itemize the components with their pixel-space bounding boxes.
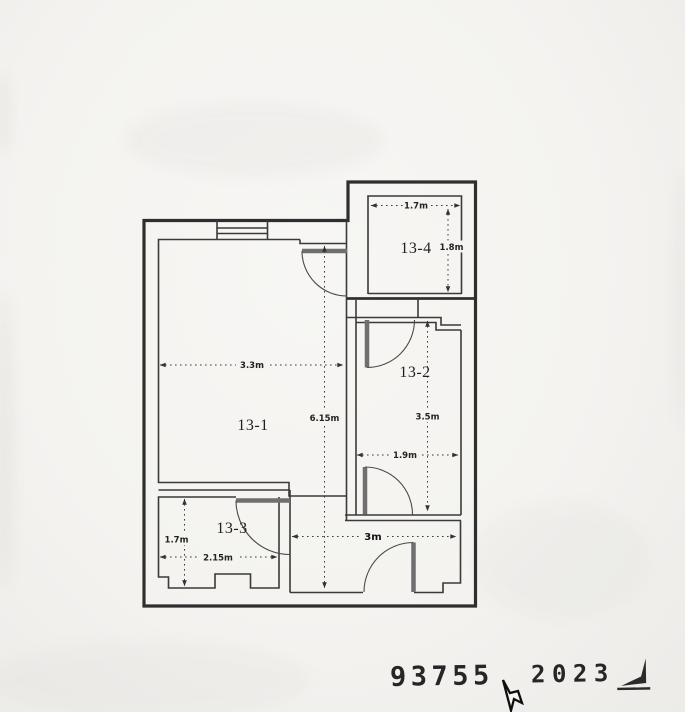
- door-swing-arc: [364, 543, 414, 593]
- room-label-13-2: 13-2: [399, 364, 430, 381]
- stamp-number-left: 93755: [390, 660, 494, 693]
- dim-13-2-height-label: 3.5m: [416, 413, 440, 423]
- scanned-floor-plan-page: 3.3m 6.15m 1.7m 1.8m 3.5m 1.9m 3m 1.7m 2: [0, 0, 685, 712]
- dim-13-3-height-label: 1.7m: [165, 536, 189, 546]
- mouse-pointer-icon: [503, 680, 522, 711]
- dim-13-1-width-label: 3.3m: [240, 361, 264, 371]
- door-13-2-lower: [365, 467, 413, 515]
- dim-13-3-width-label: 2.15m: [203, 554, 233, 564]
- stamp-numbers: 93755 2023: [390, 657, 651, 693]
- dimension-lines: 3.3m 6.15m 1.7m 1.8m 3.5m 1.9m 3m 1.7m 2: [160, 199, 465, 588]
- dim-13-1-height-label: 6.15m: [310, 414, 340, 424]
- dim-13-4-width-label: 1.7m: [404, 202, 428, 212]
- window-symbol: [217, 221, 268, 240]
- door-13-2-upper: [367, 320, 415, 368]
- door-13-1-top: [302, 251, 347, 296]
- door-swing-arc: [302, 251, 347, 296]
- dim-13-2-width-label: 1.9m: [393, 451, 417, 461]
- dim-corridor-width-label: 3m: [364, 532, 381, 543]
- stamp-corner-mark-icon: [617, 658, 651, 689]
- door-swing-arc: [365, 467, 413, 515]
- stamp-number-right: 2023: [531, 659, 615, 688]
- door-swing-arc: [367, 320, 415, 368]
- floor-plan-figure: 3.3m 6.15m 1.7m 1.8m 3.5m 1.9m 3m 1.7m 2: [0, 0, 685, 712]
- room-label-13-3: 13-3: [216, 520, 247, 537]
- door-entry: [364, 543, 414, 593]
- dim-13-4-height-label: 1.8m: [440, 243, 464, 253]
- room-label-13-1: 13-1: [237, 417, 268, 434]
- room-label-13-4: 13-4: [400, 240, 431, 257]
- paper-smudges: [0, 75, 685, 712]
- room-13-2-top-wall: [347, 318, 462, 326]
